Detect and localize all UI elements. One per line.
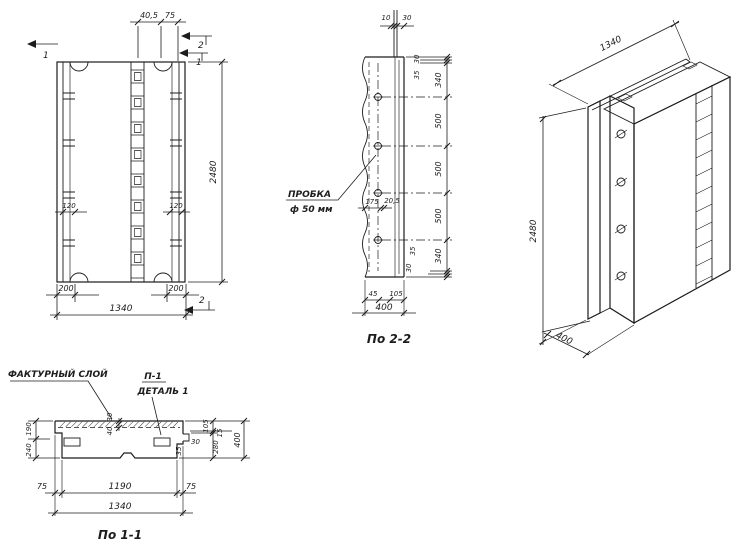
s11-dim-1340: 1340 bbox=[109, 502, 132, 512]
front-lifting-notches bbox=[70, 62, 172, 282]
s11-texture-leader bbox=[10, 381, 112, 419]
s22-dim-bottom-35: 35 bbox=[409, 246, 417, 255]
iso-dim-width: 1340 bbox=[599, 34, 624, 53]
s22-dim-340-bottom: 340 bbox=[434, 248, 443, 263]
s22-outline bbox=[365, 57, 404, 277]
section-marker-1-left: 1 bbox=[43, 51, 49, 61]
s11-dim-40: 40 bbox=[106, 426, 114, 435]
s22-plug-label-line1: ПРОБКА bbox=[288, 190, 331, 200]
section-marker-2-top: 2 bbox=[198, 41, 204, 51]
s22-wavy-break-edge bbox=[363, 57, 368, 277]
s22-dim-bottom-30: 30 bbox=[405, 263, 413, 272]
section-marker-2-bottom: 2 bbox=[199, 296, 205, 306]
front-side-walls-inner bbox=[70, 62, 172, 282]
front-center-rib bbox=[131, 62, 144, 282]
iso-top-edge-strip bbox=[588, 59, 690, 110]
s11-end-key bbox=[183, 434, 189, 441]
section-marker-1-left-arrow-icon bbox=[27, 40, 36, 48]
s11-dim-15: 15 bbox=[216, 428, 224, 437]
s22-dim-rod-right: 30 bbox=[403, 14, 412, 22]
s22-dim-500-1: 500 bbox=[434, 113, 443, 128]
s22-dim-inner-175: 175 bbox=[365, 198, 379, 206]
iso-main-face bbox=[634, 77, 730, 323]
s22-plug-label-line2: ф 50 мм bbox=[290, 205, 333, 215]
s22-dim-depth: 400 bbox=[375, 303, 392, 313]
iso-key-edge-notches bbox=[696, 96, 712, 284]
front-view: 40,5 75 2480 120 120 200 200 1340 1 2 1 … bbox=[27, 11, 228, 320]
s22-extension-lines bbox=[406, 57, 452, 277]
s22-dim-rod-left: 10 bbox=[382, 14, 391, 22]
s11-dim-105: 105 bbox=[202, 419, 210, 433]
s11-dim-key-30: 30 bbox=[191, 438, 200, 446]
front-height-dim-lines bbox=[188, 62, 228, 282]
front-dim-anchor-right: 120 bbox=[169, 202, 183, 210]
s11-dim-240: 240 bbox=[25, 443, 33, 457]
front-dim-bottom-left: 200 bbox=[58, 284, 73, 293]
front-dim-top-b: 75 bbox=[165, 11, 175, 20]
s22-dim-500-2: 500 bbox=[434, 161, 443, 176]
front-rib-keys bbox=[135, 73, 142, 263]
s22-dim-top-30: 30 bbox=[413, 54, 421, 63]
front-rib-rungs bbox=[131, 70, 144, 278]
s22-dim-500-3: 500 bbox=[434, 208, 443, 223]
front-dim-top-a: 40,5 bbox=[140, 11, 158, 20]
s22-dim-inner-205: 20,5 bbox=[384, 197, 400, 205]
section-2-2: ПРОБКА ф 50 мм 10 30 30 35 340 500 500 5… bbox=[286, 10, 452, 346]
s11-dim-30: 30 bbox=[106, 412, 114, 421]
section-marker-1-right-arrow-icon bbox=[179, 49, 188, 57]
section-marker-1-right: 1 bbox=[196, 58, 202, 68]
s22-joint-rod bbox=[394, 10, 397, 57]
front-dim-bottom-right: 200 bbox=[168, 284, 183, 293]
s11-embed-item-right bbox=[154, 438, 170, 446]
iso-dim-height: 2480 bbox=[529, 219, 539, 242]
front-dim-anchor-left: 120 bbox=[62, 202, 76, 210]
panel-drawing: 40,5 75 2480 120 120 200 200 1340 1 2 1 … bbox=[0, 0, 755, 552]
s11-detail-leader bbox=[152, 397, 161, 435]
s22-rod-dim-ticks bbox=[388, 23, 407, 29]
isometric-view: 1340 2480 400 bbox=[529, 20, 730, 358]
iso-plug-hole-ticks bbox=[615, 130, 627, 280]
front-dim-width: 1340 bbox=[110, 304, 133, 314]
iso-height-extension-lines bbox=[539, 108, 586, 344]
front-dim-height: 2480 bbox=[209, 160, 219, 183]
iso-lifting-socket-marks bbox=[618, 62, 697, 101]
s11-label-texture: ФАКТУРНЫЙ СЛОЙ bbox=[8, 368, 108, 380]
s22-caption: По 2-2 bbox=[367, 332, 411, 346]
drawing-sheet: 40,5 75 2480 120 120 200 200 1340 1 2 1 … bbox=[0, 0, 755, 552]
s11-label-detail-name: ДЕТАЛЬ 1 bbox=[137, 387, 189, 397]
s11-dim-280: 280 bbox=[212, 440, 220, 454]
iso-dim-depth: 400 bbox=[554, 331, 574, 348]
s11-dim-400: 400 bbox=[233, 432, 242, 447]
section-marker-2-top-arrow-icon bbox=[181, 32, 190, 40]
s11-label-detail-ref: П-1 bbox=[144, 372, 162, 382]
s11-embed-item-left bbox=[64, 438, 80, 446]
s22-dim-foot-105: 105 bbox=[389, 290, 403, 298]
front-anchor-clips-left bbox=[63, 93, 75, 246]
front-panel-outline bbox=[57, 62, 185, 282]
iso-keyway-hatch-strip bbox=[600, 96, 610, 313]
s22-facade-layer-lines bbox=[395, 57, 399, 277]
s22-dim-340-top: 340 bbox=[434, 72, 443, 87]
s11-dim-75-left: 75 bbox=[37, 482, 47, 491]
front-side-walls bbox=[63, 62, 179, 282]
front-top-dim-lines bbox=[130, 22, 186, 61]
iso-width-dim-line bbox=[553, 22, 679, 85]
s11-dim-1190: 1190 bbox=[109, 482, 132, 492]
section-1-1: ФАКТУРНЫЙ СЛОЙ П-1 ДЕТАЛЬ 1 190 240 30 4… bbox=[8, 368, 250, 542]
s11-dim-key-35: 35 bbox=[175, 446, 183, 455]
s11-dim-190: 190 bbox=[25, 422, 33, 436]
s11-caption: По 1-1 bbox=[98, 528, 142, 542]
iso-facade-layer-face bbox=[588, 101, 600, 319]
s22-dim-foot-45: 45 bbox=[369, 290, 378, 298]
s11-dim-75-right: 75 bbox=[186, 482, 196, 491]
s22-dim-top-35: 35 bbox=[413, 70, 421, 79]
